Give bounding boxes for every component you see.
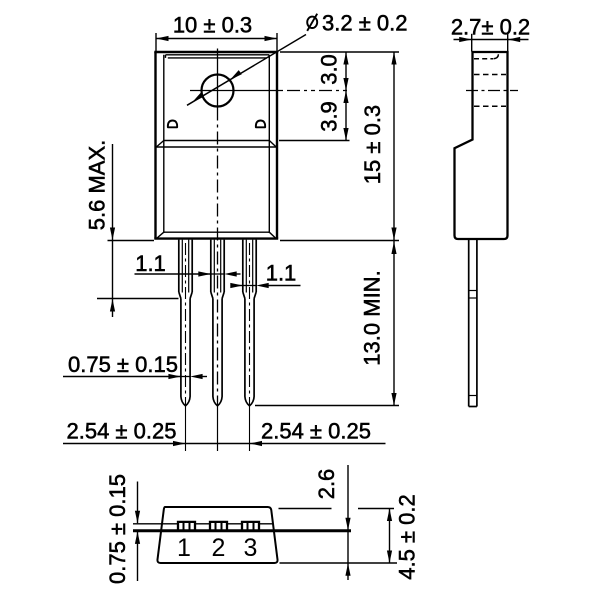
svg-text:2.7± 0.2: 2.7± 0.2 bbox=[451, 15, 530, 40]
svg-text:3.2 ± 0.2: 3.2 ± 0.2 bbox=[322, 11, 407, 36]
svg-text:3: 3 bbox=[244, 534, 258, 562]
svg-text:4.5 ± 0.2: 4.5 ± 0.2 bbox=[395, 494, 420, 579]
svg-text:0.75 ± 0.15: 0.75 ± 0.15 bbox=[68, 352, 178, 377]
svg-text:13.0 MIN.: 13.0 MIN. bbox=[360, 270, 385, 365]
svg-text:3.0: 3.0 bbox=[317, 54, 342, 85]
svg-text:2.6: 2.6 bbox=[314, 469, 339, 500]
svg-text:0.75 ± 0.15: 0.75 ± 0.15 bbox=[105, 474, 130, 584]
svg-text:5.6 MAX.: 5.6 MAX. bbox=[85, 140, 110, 230]
svg-text:2: 2 bbox=[212, 534, 226, 562]
svg-text:3.9: 3.9 bbox=[317, 101, 342, 132]
svg-text:1: 1 bbox=[177, 534, 191, 562]
svg-text:2.54 ± 0.25: 2.54 ± 0.25 bbox=[67, 419, 177, 444]
svg-text:1.1: 1.1 bbox=[135, 251, 166, 276]
svg-text:10 ± 0.3: 10 ± 0.3 bbox=[173, 13, 252, 38]
svg-text:1.1: 1.1 bbox=[266, 261, 297, 286]
svg-text:15 ± 0.3: 15 ± 0.3 bbox=[360, 105, 385, 184]
svg-text:2.54 ± 0.25: 2.54 ± 0.25 bbox=[261, 419, 371, 444]
